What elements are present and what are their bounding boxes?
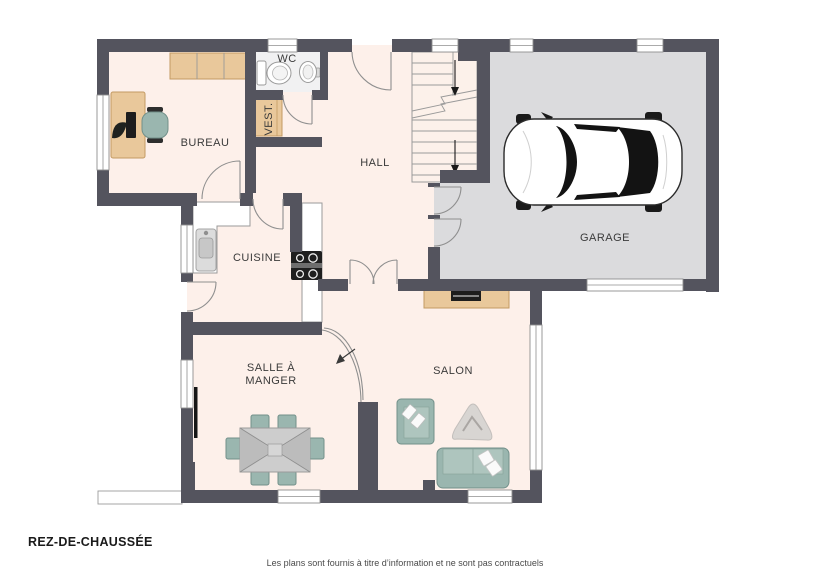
room-label-wc: WC <box>277 53 296 65</box>
dining-chair <box>251 471 269 485</box>
room-label-vestiaire: VEST. <box>263 102 275 135</box>
dining-chair <box>278 471 296 485</box>
disclaimer-text: Les plans sont fournis à titre d’informa… <box>267 558 544 568</box>
sofa <box>437 448 509 488</box>
armchair <box>397 399 434 444</box>
room-label-salle-a-manger-2: MANGER <box>245 375 296 387</box>
kitchen-sink <box>196 229 216 271</box>
floor-plan: BUREAU WC VEST. HALL GARAGE CUISINE SALL… <box>0 0 817 578</box>
dining-chair <box>309 438 324 459</box>
room-label-salle-a-manger-1: SALLE À <box>247 361 295 374</box>
entrance-step <box>98 491 182 504</box>
dining-chair <box>278 415 296 429</box>
radiator <box>194 387 198 438</box>
laptop-icon <box>126 112 136 138</box>
room-label-salon: SALON <box>433 365 473 377</box>
room-label-hall: HALL <box>360 157 390 169</box>
car <box>504 112 682 212</box>
wall-shelf <box>170 53 251 79</box>
room-label-garage: GARAGE <box>580 232 630 244</box>
room-label-bureau: BUREAU <box>181 137 230 149</box>
cooktop <box>291 251 322 280</box>
dining-chair <box>226 438 241 459</box>
room-label-cuisine: CUISINE <box>233 252 281 264</box>
floor-title: REZ-DE-CHAUSSÉE <box>28 534 153 549</box>
dining-table <box>240 428 310 472</box>
floor-plan-page: BUREAU WC VEST. HALL GARAGE CUISINE SALL… <box>0 0 817 578</box>
sideboard <box>424 290 509 308</box>
dining-chair <box>251 415 269 429</box>
staircase <box>412 52 477 182</box>
